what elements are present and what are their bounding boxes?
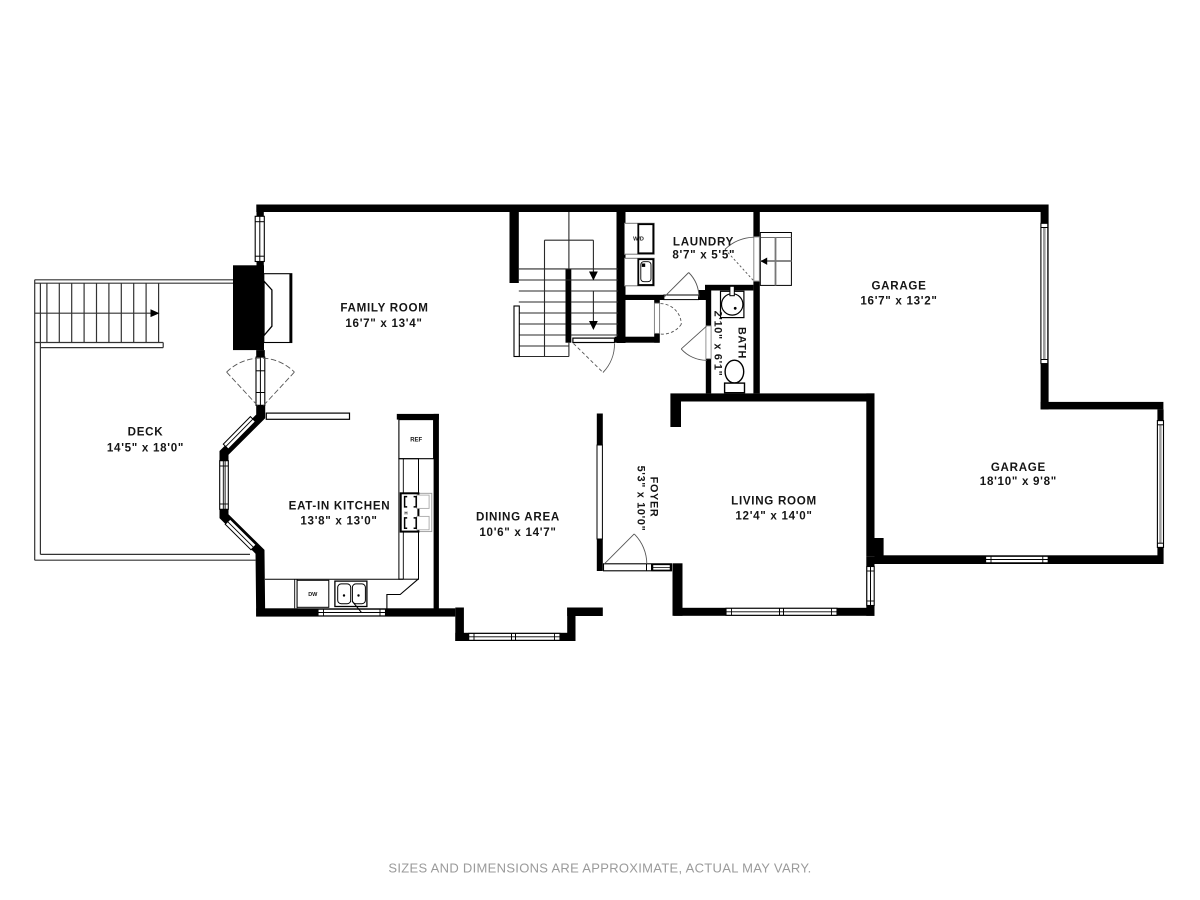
svg-text:18'10" x 9'8": 18'10" x 9'8"	[980, 475, 1057, 488]
svg-text:16'7" x 13'4": 16'7" x 13'4"	[345, 317, 422, 330]
svg-text:2'10" x 6'1": 2'10" x 6'1"	[712, 311, 724, 377]
svg-text:GARAGE: GARAGE	[871, 280, 926, 293]
svg-text:GARAGE: GARAGE	[991, 461, 1046, 474]
svg-text:DECK: DECK	[128, 426, 164, 439]
svg-text:REF: REF	[410, 438, 422, 444]
svg-text:FAMILY ROOM: FAMILY ROOM	[340, 302, 428, 315]
svg-text:SIZES AND DIMENSIONS ARE APPRO: SIZES AND DIMENSIONS ARE APPROXIMATE, AC…	[388, 861, 811, 876]
svg-text:H: H	[404, 511, 407, 516]
svg-text:LAUNDRY: LAUNDRY	[673, 236, 734, 249]
svg-text:EAT-IN KITCHEN: EAT-IN KITCHEN	[289, 500, 391, 513]
svg-text:13'8" x 13'0": 13'8" x 13'0"	[300, 515, 377, 528]
svg-text:10'6" x 14'7": 10'6" x 14'7"	[479, 526, 556, 539]
svg-text:16'7" x 13'2": 16'7" x 13'2"	[860, 295, 937, 308]
svg-text:BATH: BATH	[736, 327, 748, 359]
svg-text:12'4" x 14'0": 12'4" x 14'0"	[735, 510, 812, 523]
svg-text:LIVING ROOM: LIVING ROOM	[731, 495, 817, 508]
svg-text:DW: DW	[308, 592, 318, 598]
svg-text:W/D: W/D	[633, 237, 644, 243]
svg-text:14'5" x 18'0": 14'5" x 18'0"	[107, 442, 184, 455]
svg-text:FOYER: FOYER	[648, 477, 660, 518]
svg-text:DINING AREA: DINING AREA	[476, 511, 560, 524]
svg-text:5'3" x 10'0": 5'3" x 10'0"	[635, 466, 647, 532]
svg-text:8'7" x 5'5": 8'7" x 5'5"	[672, 248, 735, 261]
